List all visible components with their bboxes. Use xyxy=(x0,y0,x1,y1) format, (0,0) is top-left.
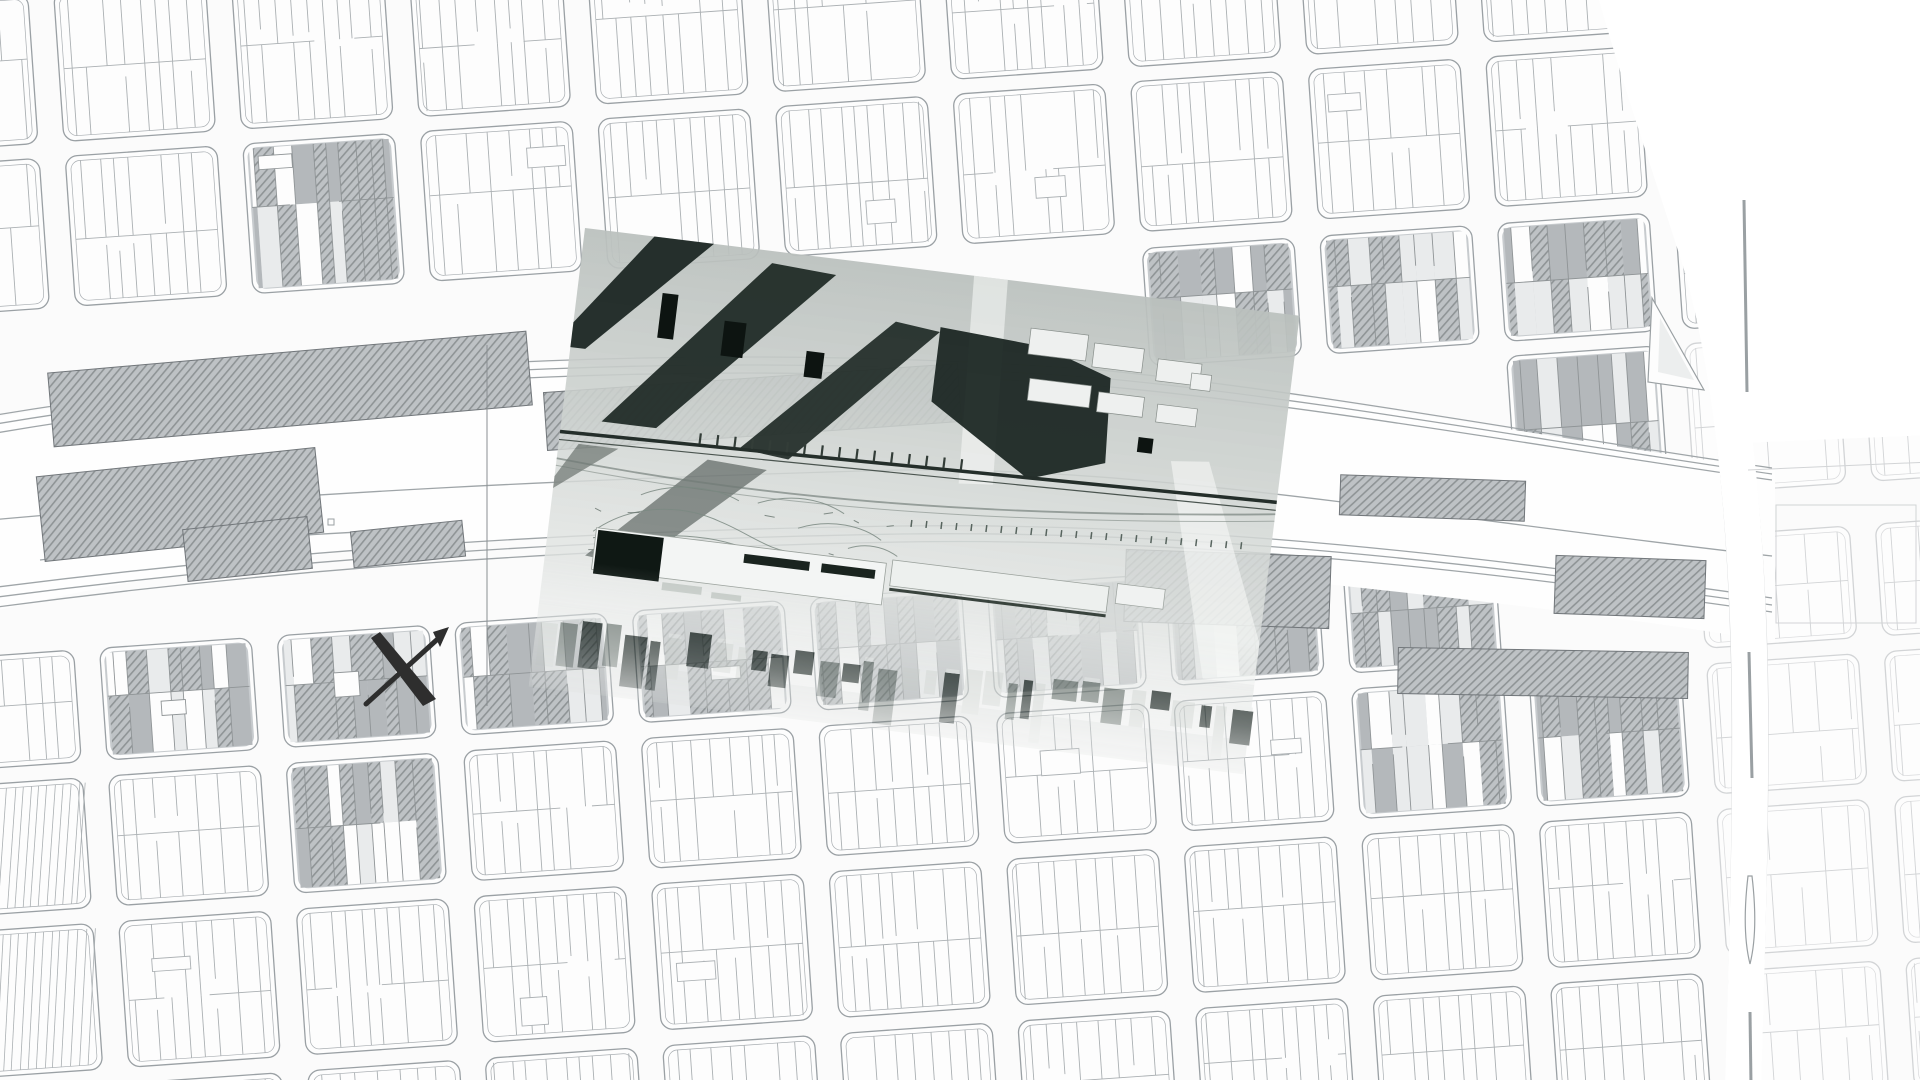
warehouse-building xyxy=(1554,555,1706,618)
model-photo-overlay xyxy=(529,228,1302,775)
warehouse-building xyxy=(1339,475,1525,521)
block-outline xyxy=(65,146,227,306)
city-block xyxy=(119,911,281,1067)
city-block xyxy=(0,650,81,772)
model-tower xyxy=(720,321,746,358)
city-block xyxy=(231,0,393,129)
tree-mark xyxy=(926,521,927,528)
city-block xyxy=(474,886,636,1042)
block-outline xyxy=(119,911,281,1067)
city-block xyxy=(641,728,802,868)
model-small-building xyxy=(686,632,712,669)
site-plan-svg xyxy=(0,0,1920,1080)
city-block xyxy=(296,899,458,1055)
tree-mark xyxy=(956,523,957,530)
city-block xyxy=(0,778,94,919)
city-block xyxy=(54,0,216,142)
city-block xyxy=(1195,998,1356,1080)
block-outline xyxy=(464,741,625,881)
city-block xyxy=(829,861,991,1017)
tree-mark xyxy=(1031,528,1032,535)
model-small-building xyxy=(751,650,768,672)
model-small-building xyxy=(1081,681,1101,703)
block-outline xyxy=(840,1023,1001,1080)
city-block-built xyxy=(1320,226,1480,354)
tree-mark xyxy=(971,524,972,531)
tree-mark xyxy=(1046,529,1047,536)
city-block xyxy=(420,121,582,281)
block-outline xyxy=(1308,59,1470,219)
model-small-building xyxy=(1150,690,1171,710)
city-block xyxy=(586,0,748,104)
block-outline xyxy=(1184,837,1346,993)
block-outline xyxy=(0,923,103,1079)
tree-mark xyxy=(1181,538,1182,545)
city-block xyxy=(1308,59,1470,219)
city-block xyxy=(0,923,105,1080)
city-block xyxy=(1184,837,1346,993)
city-block xyxy=(65,146,227,306)
block-outline xyxy=(474,886,636,1042)
block-outline xyxy=(108,765,269,905)
city-block xyxy=(1550,973,1711,1080)
city-block xyxy=(1119,0,1281,67)
city-block-built xyxy=(1497,213,1657,341)
tree-mark xyxy=(986,525,987,532)
model-small-building xyxy=(793,650,815,675)
model-small-building xyxy=(1229,709,1253,745)
model-tower xyxy=(804,351,825,379)
tree-mark xyxy=(1091,532,1092,539)
tree-mark xyxy=(1121,534,1122,541)
city-block xyxy=(1018,1011,1179,1080)
block-outline xyxy=(641,728,802,868)
block-outline xyxy=(420,121,582,281)
city-block-built xyxy=(286,753,447,893)
building-dark-panel xyxy=(593,530,664,582)
city-block xyxy=(1875,514,1920,636)
city-block xyxy=(1706,654,1867,794)
city-block-built xyxy=(99,638,258,760)
tree-mark xyxy=(1226,541,1227,548)
city-block xyxy=(840,1023,1001,1080)
tree-mark xyxy=(1136,535,1137,542)
city-block xyxy=(464,741,625,881)
block-outline xyxy=(231,0,393,129)
tree-mark xyxy=(911,520,912,527)
block-outline xyxy=(1706,654,1867,794)
city-block xyxy=(953,84,1115,244)
tree-mark xyxy=(1016,527,1017,534)
model-small-building xyxy=(713,642,734,673)
city-block xyxy=(1539,812,1701,968)
city-block xyxy=(651,874,813,1030)
block-outline xyxy=(1875,514,1920,636)
block-outline xyxy=(586,0,748,104)
tree-mark xyxy=(1061,530,1062,537)
model-white-building xyxy=(1190,373,1212,391)
block-outline xyxy=(775,96,937,256)
model-dark-building xyxy=(1137,437,1154,454)
city-block xyxy=(764,0,926,92)
tree-mark xyxy=(941,522,942,529)
tree-mark xyxy=(1001,526,1002,533)
city-block xyxy=(1006,849,1168,1005)
tree-mark xyxy=(1106,533,1107,540)
model-small-building xyxy=(1170,700,1195,729)
city-block xyxy=(108,765,269,905)
model-small-building xyxy=(1100,687,1125,725)
city-block xyxy=(941,0,1103,79)
block-outline xyxy=(829,861,991,1017)
block-outline xyxy=(1362,824,1524,980)
block-outline xyxy=(296,899,458,1055)
city-block xyxy=(1130,71,1292,231)
warehouse-building xyxy=(1398,647,1689,698)
block-outline xyxy=(1550,973,1711,1080)
city-block-built xyxy=(1351,678,1512,818)
tree-mark xyxy=(1166,537,1167,544)
model-small-building xyxy=(1051,679,1078,702)
city-block xyxy=(775,96,937,256)
tree-mark xyxy=(1211,540,1212,547)
tree-mark xyxy=(1076,531,1077,538)
city-block xyxy=(1373,986,1534,1080)
block-outline xyxy=(1195,998,1356,1080)
median-island xyxy=(1750,1012,1751,1080)
city-block-built xyxy=(243,133,405,293)
tree-mark xyxy=(1196,539,1197,546)
city-block xyxy=(409,0,571,117)
city-block xyxy=(1362,824,1524,980)
tree-mark xyxy=(1151,536,1152,543)
model-small-building xyxy=(841,663,860,683)
avenue-roadway xyxy=(1742,422,1920,430)
block-outline xyxy=(953,84,1115,244)
model-small-building xyxy=(901,667,920,691)
tree-mark xyxy=(1241,542,1242,549)
site-plan-canvas xyxy=(0,0,1920,1080)
